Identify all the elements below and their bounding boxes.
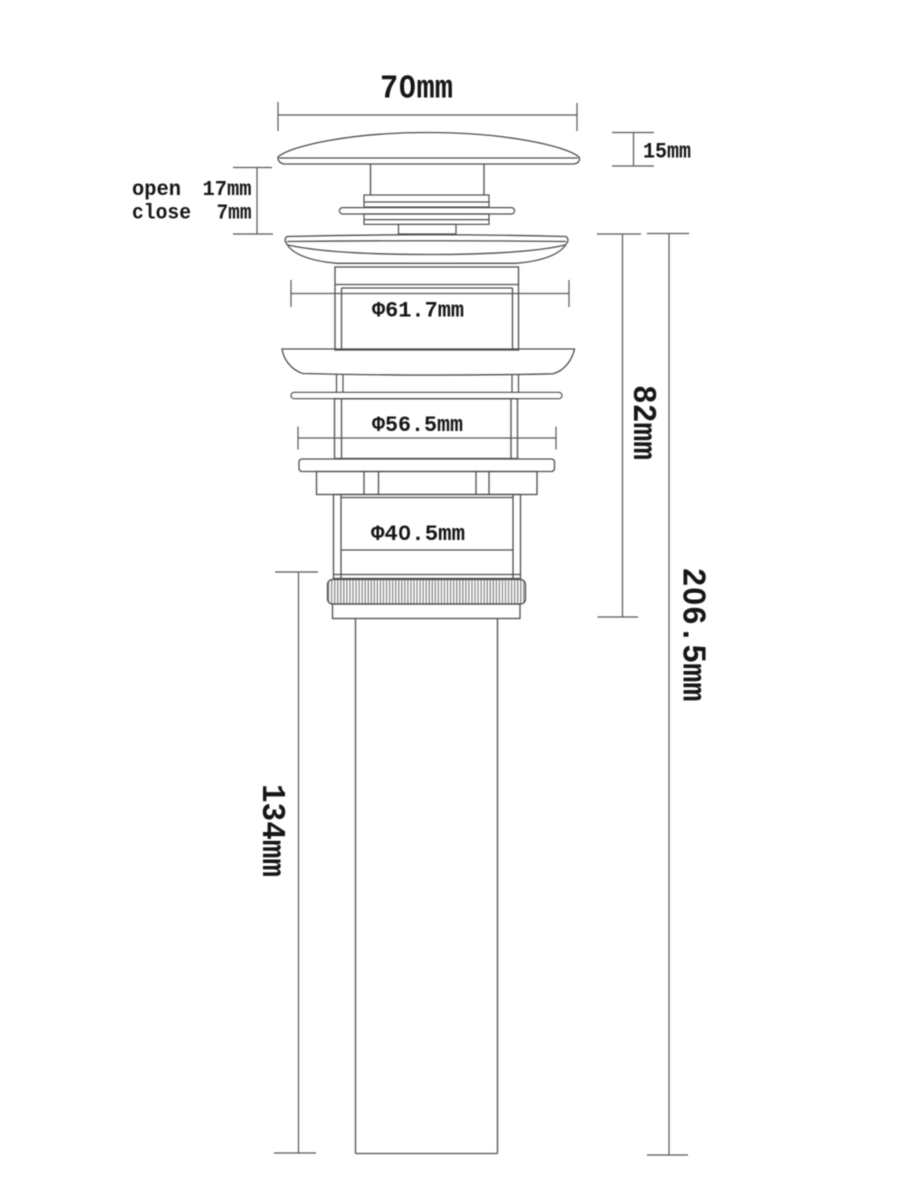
- svg-text:206.5mm: 206.5mm: [673, 568, 711, 702]
- svg-text:close: close: [132, 203, 191, 226]
- svg-text:15mm: 15mm: [643, 139, 691, 165]
- svg-text:Φ56.5mm: Φ56.5mm: [372, 413, 463, 438]
- svg-text:82mm: 82mm: [623, 385, 661, 460]
- svg-text:7mm: 7mm: [217, 203, 252, 226]
- svg-text:open: open: [132, 179, 181, 202]
- svg-text:Φ40.5mm: Φ40.5mm: [371, 522, 465, 547]
- svg-text:134mm: 134mm: [252, 784, 290, 877]
- svg-text:70mm: 70mm: [380, 71, 453, 108]
- svg-text:Φ61.7mm: Φ61.7mm: [372, 299, 464, 324]
- svg-text:17mm: 17mm: [203, 179, 252, 202]
